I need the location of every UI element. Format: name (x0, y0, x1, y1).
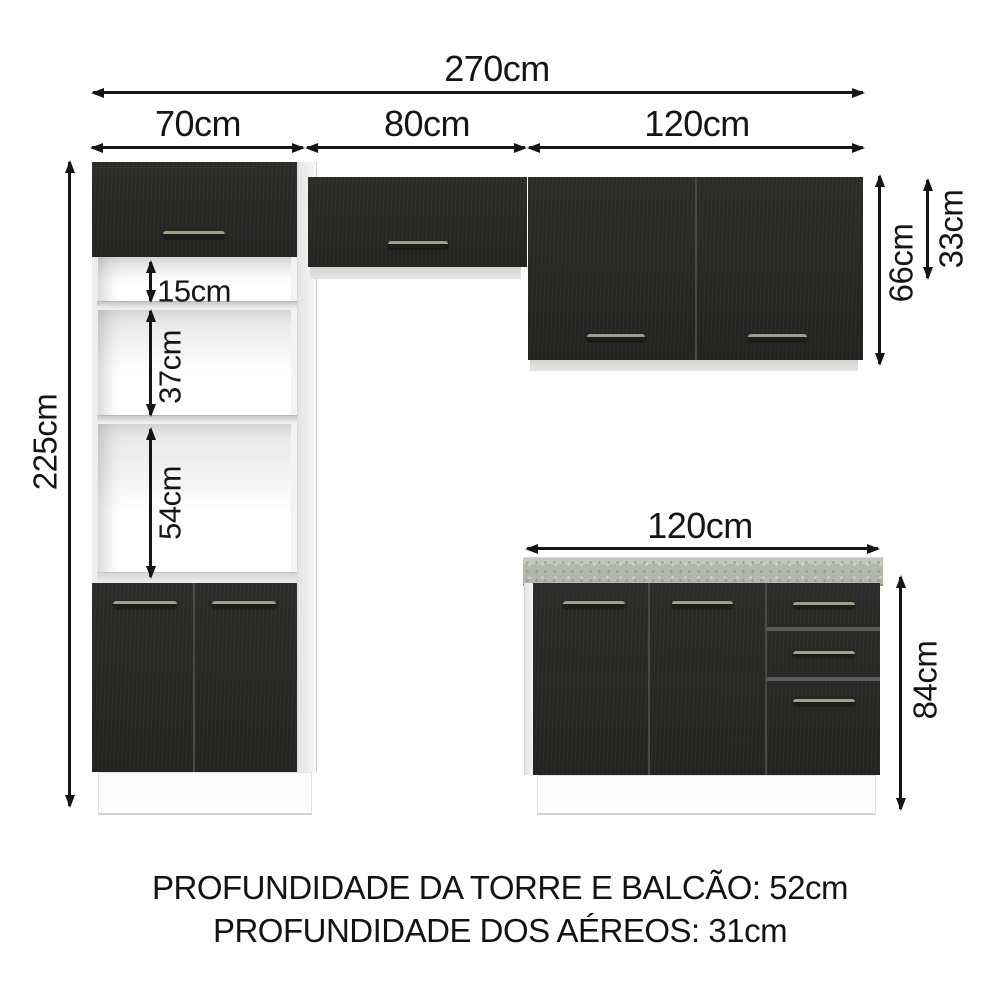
dim-label-middle-width: 80cm (384, 106, 470, 142)
tower-plinth (98, 772, 312, 815)
dim-label-tower-width: 70cm (155, 106, 241, 142)
right-aerial-left-door-handle (587, 334, 645, 341)
dim-label-aerial-width: 120cm (644, 106, 750, 142)
middle-aerial-handle (388, 241, 448, 248)
counter-drawer-gap-2 (767, 677, 880, 681)
counter-drawer1-handle (793, 602, 855, 608)
middle-aerial-cabinet-door (308, 177, 527, 267)
dim-arrow-aerial-height (878, 176, 881, 364)
depth-note-tower-counter: PROFUNDIDADE DA TORRE E BALCÃO: 52cm (0, 866, 1000, 909)
tower-base-cabinet (92, 583, 297, 772)
counter-door2-handle (672, 601, 733, 608)
counter-door1-handle (563, 601, 625, 608)
dim-arrow-aerial-width (529, 146, 863, 149)
dim-label-aerial-middle-height: 33cm (935, 190, 968, 269)
dim-arrow-aerial-middle-height (926, 180, 929, 278)
dim-arrow-niche-top (149, 262, 152, 301)
tower-niche-bottom (98, 424, 291, 572)
right-aerial-cabinet (528, 177, 863, 360)
tower-base-right-door-handle (212, 601, 276, 608)
right-aerial-right-door-handle (748, 334, 807, 341)
counter-door-seam-1 (648, 583, 650, 775)
dim-label-niche-bottom: 54cm (155, 466, 186, 540)
depth-notes: PROFUNDIDADE DA TORRE E BALCÃO: 52cm PRO… (0, 866, 1000, 952)
kitchen-dimension-diagram: 270cm 70cm 80cm 120cm 225cm 15cm 37cm 54… (0, 0, 1000, 1000)
right-aerial-door-seam (695, 177, 697, 360)
counter-countertop (523, 557, 883, 586)
tower-base-door-seam (193, 583, 195, 772)
counter-drawer3-handle (793, 699, 855, 705)
right-aerial-bottom-face (530, 360, 858, 371)
dim-label-niche-middle: 37cm (155, 330, 186, 404)
tower-base-left-door-handle (113, 601, 177, 608)
dim-label-aerial-height: 66cm (885, 224, 918, 303)
tower-top-cabinet-handle (163, 231, 225, 238)
dim-label-counter-height: 84cm (909, 641, 942, 720)
counter-drawer2-handle (793, 651, 855, 657)
depth-note-aerials: PROFUNDIDADE DOS AÉREOS: 31cm (0, 909, 1000, 952)
counter-plinth (537, 775, 876, 815)
dim-arrow-middle-width (307, 146, 525, 149)
tower-top-cabinet-door (92, 162, 297, 257)
dim-label-niche-top: 15cm (157, 276, 231, 307)
middle-aerial-bottom-face (310, 267, 521, 279)
dim-label-tower-height: 225cm (29, 394, 62, 491)
dim-arrow-tower-width (92, 146, 303, 149)
counter-drawer-gap-1 (767, 627, 880, 631)
dim-arrow-counter-height (899, 577, 902, 809)
dim-label-total-width: 270cm (444, 51, 550, 87)
dim-arrow-counter-width (527, 547, 878, 550)
dim-arrow-total-width (93, 91, 863, 94)
tower-niche-middle (98, 310, 291, 415)
counter-body (533, 583, 880, 775)
dim-arrow-tower-height (68, 162, 71, 806)
dim-label-counter-width: 120cm (647, 508, 753, 544)
